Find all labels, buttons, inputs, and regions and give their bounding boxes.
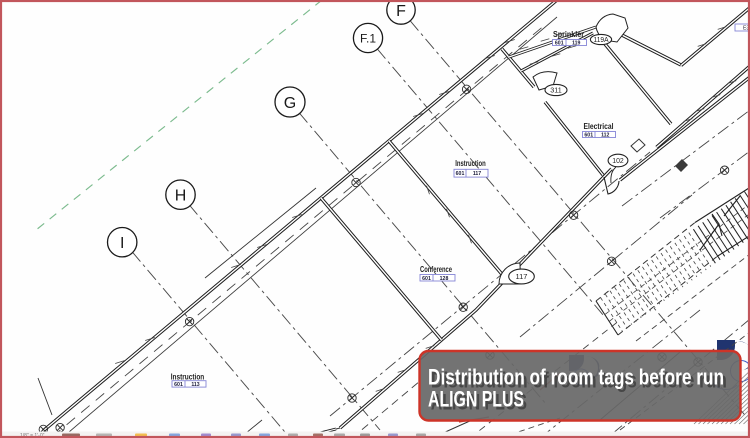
svg-text:128: 128 (440, 276, 449, 282)
svg-text:F.1: F.1 (360, 31, 376, 45)
svg-text:119A: 119A (594, 35, 609, 44)
svg-text:117: 117 (473, 171, 481, 177)
svg-text:601: 601 (555, 41, 564, 47)
svg-text:F: F (396, 3, 406, 20)
svg-text:117: 117 (516, 272, 528, 281)
svg-text:G: G (284, 95, 296, 112)
svg-text:Instruction: Instruction (171, 373, 205, 382)
svg-text:601: 601 (422, 276, 431, 282)
svg-text:112: 112 (601, 133, 609, 139)
svg-text:102: 102 (612, 156, 624, 165)
svg-text:Electrical: Electrical (584, 122, 614, 131)
svg-text:601: 601 (456, 171, 465, 177)
svg-text:601: 601 (174, 382, 183, 388)
svg-text:ALIGN PLUS: ALIGN PLUS (428, 387, 524, 412)
svg-text:I: I (120, 235, 124, 252)
svg-text:601: 601 (584, 133, 593, 139)
svg-text:113: 113 (191, 382, 199, 388)
svg-text:Instruction: Instruction (455, 159, 486, 168)
svg-text:Conference: Conference (420, 265, 452, 274)
svg-text:119: 119 (572, 41, 580, 47)
svg-text:311: 311 (550, 86, 562, 95)
svg-text:H: H (175, 187, 187, 204)
